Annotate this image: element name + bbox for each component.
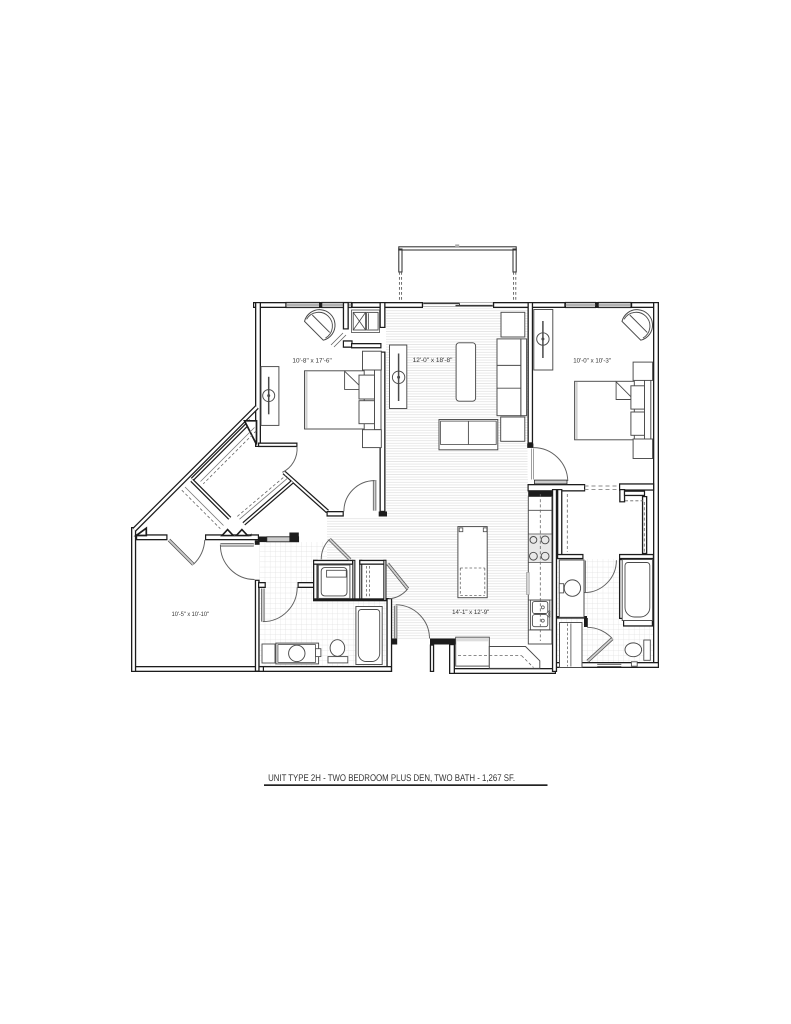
- svg-text:12'-0" x 18'-8": 12'-0" x 18'-8": [413, 357, 453, 364]
- svg-text:14'-1" x 12'-9": 14'-1" x 12'-9": [452, 609, 489, 616]
- svg-text:10'-8" x 17'-6": 10'-8" x 17'-6": [292, 357, 331, 364]
- svg-text:10'-0" x 10'-3": 10'-0" x 10'-3": [573, 358, 611, 365]
- svg-text:UNIT TYPE 2H - TWO BEDROOM PLU: UNIT TYPE 2H - TWO BEDROOM PLUS DEN, TWO…: [268, 773, 515, 784]
- svg-text:10'-5" x 10'-10": 10'-5" x 10'-10": [172, 611, 209, 618]
